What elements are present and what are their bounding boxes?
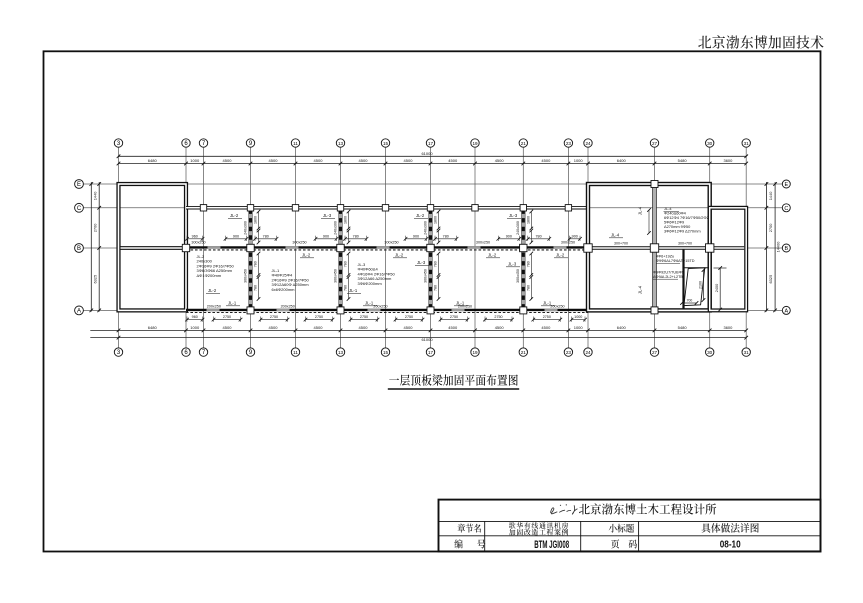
svg-text:A: A [784,308,788,314]
svg-text:1440: 1440 [93,191,98,200]
svg-text:JL-2: JL-2 [488,253,497,258]
svg-text:780: 780 [344,261,348,267]
svg-text:61000: 61000 [421,337,433,342]
svg-text:780: 780 [526,285,530,291]
svg-text:4500: 4500 [269,325,279,330]
svg-text:JL-2: JL-2 [416,213,425,218]
svg-text:1000: 1000 [574,315,582,319]
svg-text:ΔΦ9ΔL2L2+L2TB: ΔΦ9ΔL2L2+L2TB [653,275,683,279]
svg-text:23: 23 [566,141,572,146]
svg-text:4500: 4500 [404,158,414,163]
svg-text:2750: 2750 [494,315,502,319]
svg-text:780: 780 [434,285,438,291]
svg-text:300x250: 300x250 [476,241,490,245]
svg-text:27: 27 [652,350,658,355]
svg-text:15: 15 [383,141,389,146]
svg-text:1800: 1800 [434,216,438,224]
svg-text:Φ9Φ92U7/7UBΦ9: Φ9Φ92U7/7UBΦ9 [653,271,684,275]
svg-text:2750: 2750 [405,315,413,319]
svg-text:4500: 4500 [495,158,505,163]
svg-text:JL-1: JL-1 [228,301,237,306]
svg-text:21: 21 [521,350,527,355]
svg-text:E: E [784,182,788,188]
svg-text:2750: 2750 [223,315,231,319]
svg-text:24: 24 [585,141,591,146]
svg-text:JL-2: JL-2 [230,213,239,218]
svg-text:6x6Φ200mm: 6x6Φ200mm [272,287,296,292]
svg-text:13: 13 [338,350,344,355]
svg-text:2750: 2750 [270,315,278,319]
svg-text:19: 19 [472,350,478,355]
svg-text:780: 780 [353,234,359,238]
svg-text:1000: 1000 [574,158,584,163]
svg-text:6480: 6480 [148,158,158,163]
svg-text:780: 780 [344,285,348,291]
svg-text:780: 780 [254,285,258,291]
svg-text:200x250: 200x250 [458,304,472,308]
svg-text:4500: 4500 [359,158,369,163]
svg-text:31: 31 [744,350,750,355]
svg-text:900: 900 [323,234,329,238]
svg-text:4500: 4500 [314,158,324,163]
svg-text:300x450: 300x450 [423,269,427,283]
svg-text:11: 11 [293,141,298,146]
svg-text:1800: 1800 [254,216,258,224]
svg-text:E: E [77,182,81,188]
svg-text:900: 900 [413,234,419,238]
svg-text:240x300: 240x300 [333,221,337,235]
svg-text:960: 960 [192,315,198,319]
svg-text:300x250: 300x250 [191,241,205,245]
svg-text:JL-4: JL-4 [638,206,643,215]
svg-text:900: 900 [233,234,239,238]
svg-text:13: 13 [338,141,344,146]
svg-text:780: 780 [443,234,449,238]
svg-text:ΔΦ1Φ200mm: ΔΦ1Φ200mm [197,273,222,278]
svg-text:4500: 4500 [269,158,279,163]
svg-text:Φ9Φ6ΔL7Φ6ΔT+15TD: Φ9Φ6ΔL7Φ6ΔT+15TD [656,259,695,263]
svg-text:240x300: 240x300 [516,221,520,235]
svg-text:4Φ6+19Zu: 4Φ6+19Zu [656,255,674,259]
svg-text:2100: 2100 [698,281,702,289]
svg-text:3600: 3600 [723,325,733,330]
svg-text:200x250: 200x250 [373,304,387,308]
svg-text:780: 780 [526,261,530,267]
svg-text:4500: 4500 [223,158,233,163]
svg-text:14400: 14400 [775,241,780,253]
svg-text:6325: 6325 [93,275,98,284]
svg-text:17: 17 [428,141,434,146]
svg-text:4500: 4500 [359,325,369,330]
svg-text:JL-3: JL-3 [509,213,518,218]
svg-text:3Φ6Φ12Φ9 Δ270mm: 3Φ6Φ12Φ9 Δ270mm [664,229,701,234]
svg-text:2700: 2700 [93,223,98,232]
svg-text:2400: 2400 [715,284,719,292]
svg-text:JL-2: JL-2 [556,253,565,258]
svg-text:300x250: 300x250 [384,241,398,245]
svg-text:A: A [77,309,81,315]
svg-text:200x250: 200x250 [281,304,295,308]
svg-text:240x300: 240x300 [423,221,427,235]
svg-text:61000: 61000 [421,151,433,156]
svg-text:780: 780 [434,261,438,267]
svg-text:08-10: 08-10 [720,539,741,551]
svg-text:30: 30 [707,141,713,146]
svg-text:BTM JGI008: BTM JGI008 [534,539,569,551]
svg-text:200x250: 200x250 [207,304,221,308]
svg-text:1000: 1000 [190,158,200,163]
svg-text:1000: 1000 [574,325,584,330]
svg-text:780: 780 [535,234,541,238]
svg-text:17: 17 [428,350,434,355]
svg-text:2750: 2750 [360,315,368,319]
svg-text:1800: 1800 [526,216,530,224]
svg-text:3600: 3600 [723,158,733,163]
svg-text:23: 23 [566,350,572,355]
svg-text:2750: 2750 [450,315,458,319]
svg-text:240x300: 240x300 [243,221,247,235]
svg-text:24: 24 [585,350,591,355]
svg-text:4500: 4500 [223,325,233,330]
svg-text:1000: 1000 [190,325,200,330]
svg-text:4500: 4500 [541,158,551,163]
svg-text:C: C [77,206,82,212]
svg-text:5480: 5480 [678,158,688,163]
svg-text:4500: 4500 [314,325,324,330]
svg-text:300x450: 300x450 [243,269,247,283]
svg-text:3Φ6Φ200mm: 3Φ6Φ200mm [358,281,383,286]
svg-text:27: 27 [652,141,658,146]
svg-text:B: B [784,246,788,252]
svg-text:2700: 2700 [768,223,773,232]
svg-text:C: C [784,206,788,212]
svg-text:4500: 4500 [404,325,414,330]
svg-text:2750: 2750 [543,315,551,319]
svg-text:300x450: 300x450 [333,269,337,283]
svg-text:JL-3: JL-3 [417,260,426,265]
svg-text:JL-1: JL-1 [349,288,358,293]
svg-text:700: 700 [687,299,693,303]
svg-text:JL-2: JL-2 [208,288,217,293]
svg-text:6400: 6400 [617,158,627,163]
svg-text:900: 900 [506,234,512,238]
svg-text:2750: 2750 [315,315,323,319]
svg-text:JL-3: JL-3 [323,213,332,218]
svg-text:960: 960 [192,234,198,238]
svg-text:15: 15 [383,350,389,355]
svg-text:4500: 4500 [541,325,551,330]
svg-text:JL-2: JL-2 [395,253,404,258]
svg-text:4500: 4500 [495,325,505,330]
svg-text:JL-2: JL-2 [302,253,311,258]
svg-text:11: 11 [293,350,298,355]
svg-text:JL-3: JL-3 [508,262,517,267]
svg-text:1800: 1800 [344,216,348,224]
svg-text:JL-4: JL-4 [638,285,643,294]
svg-text:4500: 4500 [448,158,458,163]
svg-text:19: 19 [472,141,478,146]
svg-text:300+700: 300+700 [614,241,628,245]
svg-text:6480: 6480 [148,325,158,330]
svg-text:4500: 4500 [448,325,458,330]
svg-text:1440: 1440 [768,191,773,200]
svg-text:JL-4: JL-4 [611,233,620,238]
svg-text:200x250: 200x250 [550,304,564,308]
svg-text:B: B [77,246,81,252]
svg-text:6400: 6400 [617,325,627,330]
svg-text:6325: 6325 [768,275,773,284]
svg-text:300x250: 300x250 [292,241,306,245]
svg-text:31: 31 [744,141,750,146]
svg-text:780: 780 [263,234,269,238]
svg-text:300+700: 300+700 [678,241,692,245]
svg-text:5480: 5480 [678,325,688,330]
svg-text:30: 30 [707,350,713,355]
svg-text:300x450: 300x450 [516,269,520,283]
svg-text:300x250: 300x250 [561,241,575,245]
svg-text:780: 780 [254,261,258,267]
svg-text:900: 900 [572,234,578,238]
svg-text:21: 21 [521,141,527,146]
